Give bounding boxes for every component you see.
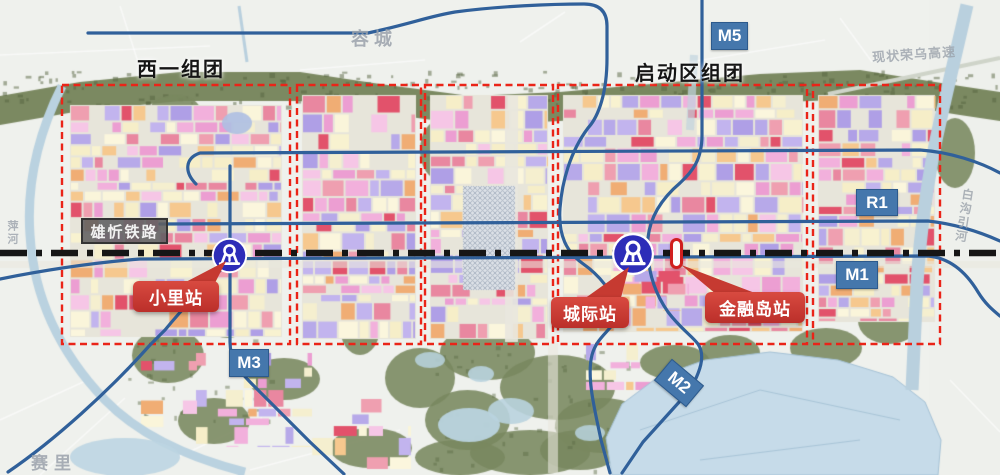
region-label-west-group: 西一组团 bbox=[137, 53, 225, 82]
metro-line-upper-horizontal bbox=[188, 150, 1000, 184]
metro-line-r1 bbox=[160, 221, 1000, 241]
railway-name-box: 雄忻铁路 bbox=[81, 218, 168, 244]
metro-line-m3 bbox=[230, 166, 344, 474]
metro-badge-m3: M3 bbox=[229, 349, 269, 377]
metro-badge-r1: R1 bbox=[856, 189, 898, 216]
station-callout-jinrongdao: 金融岛站 bbox=[705, 292, 805, 323]
village-label-saili: 赛里 bbox=[31, 449, 77, 474]
river-label-pinghe: 萍河 bbox=[4, 220, 20, 246]
metro-badge-m5: M5 bbox=[711, 22, 748, 50]
district-boundary-2 bbox=[297, 85, 421, 344]
railway-station-icon-chengji bbox=[611, 232, 655, 276]
district-boundary-3 bbox=[425, 85, 553, 344]
planning-map: 西一组团 启动区组团 容城 现状荣乌高速 赛里 萍河 白沟引河 雄忻铁路 M5 … bbox=[0, 0, 1000, 475]
station-callout-xiaoli: 小里站 bbox=[133, 281, 219, 312]
city-label-rongcheng: 容城 bbox=[351, 25, 397, 51]
financial-island-station-marker bbox=[670, 238, 683, 269]
region-label-startup-group: 启动区组团 bbox=[635, 57, 745, 86]
station-callout-chengji: 城际站 bbox=[551, 297, 629, 328]
metro-badge-m1: M1 bbox=[836, 261, 878, 289]
